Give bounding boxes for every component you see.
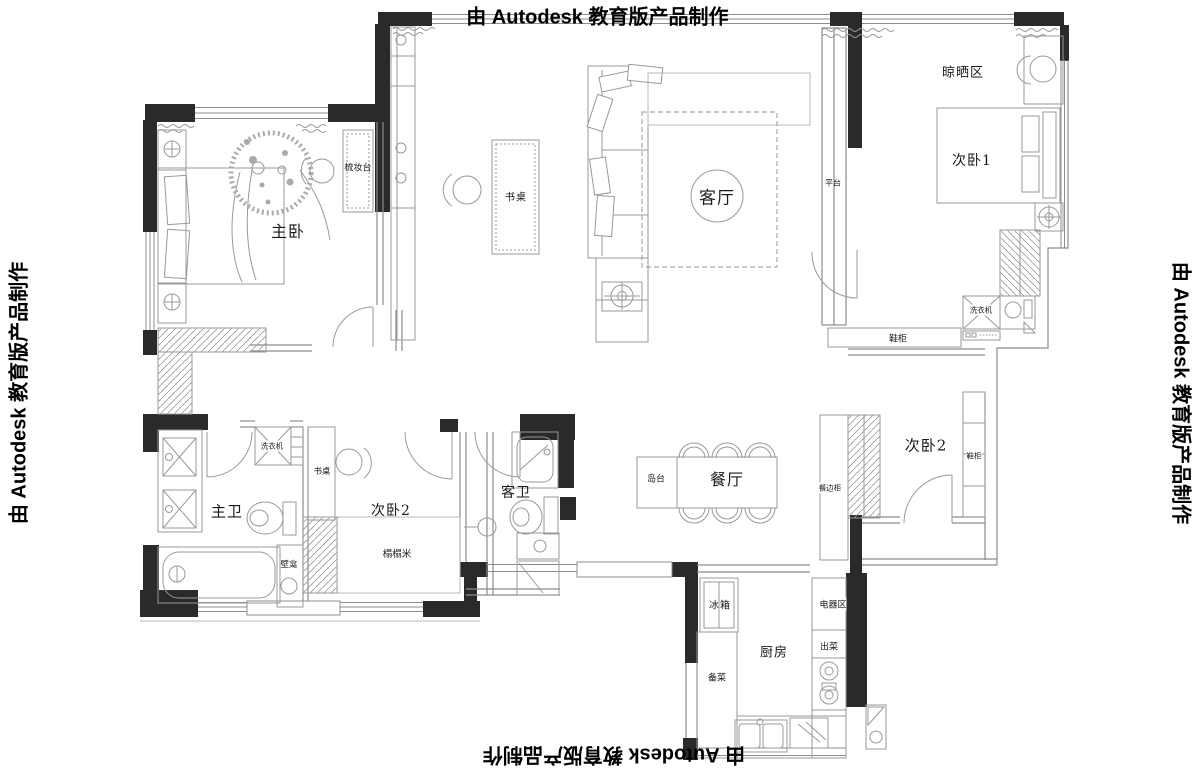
label-bedroom2-left: 次卧2: [371, 500, 411, 520]
floorplan-canvas: 主卧 梳妆台 书桌 客厅 平台 晾晒区 次卧1 洗衣机 鞋柜 次卧2 鞋柜 餐边…: [0, 0, 1200, 776]
label-shoe-cabinet-top: 鞋柜: [889, 332, 907, 345]
label-master-bath: 主卫: [211, 501, 243, 522]
autodesk-banner-right: 由 Autodesk 教育版产品制作: [1169, 262, 1198, 524]
label-platform: 平台: [825, 178, 841, 189]
label-prep: 备菜: [708, 671, 726, 684]
label-shoe-cabinet-right: 鞋柜: [967, 451, 982, 462]
autodesk-banner-left: 由 Autodesk 教育版产品制作: [3, 262, 32, 524]
autodesk-banner-bottom: 由 Autodesk 教育版产品制作: [483, 743, 745, 772]
living-room-furniture: [391, 27, 810, 342]
label-washer-left: 洗衣机: [261, 441, 284, 452]
label-bedroom1: 次卧1: [952, 150, 992, 170]
label-master-bedroom: 主卧: [271, 218, 305, 242]
label-dining-room: 餐厅: [710, 466, 744, 490]
label-niche: 壁龛: [280, 558, 297, 570]
label-drying-area: 晾晒区: [942, 62, 984, 81]
label-living-room: 客厅: [699, 184, 735, 209]
label-guest-bath: 客卫: [501, 482, 531, 502]
label-dressing-table: 梳妆台: [344, 161, 371, 174]
bedroom2-right-furniture: [820, 392, 985, 560]
autodesk-banner-top: 由 Autodesk 教育版产品制作: [466, 1, 728, 30]
label-appliance-area: 电器区: [819, 598, 846, 611]
label-desk-bedroom: 书桌: [313, 465, 330, 477]
label-tatami: 榻榻米: [383, 546, 412, 560]
label-washer-right: 洗衣机: [970, 305, 993, 316]
label-serving: 出菜: [820, 640, 838, 653]
floorplan-drawing: [0, 0, 1200, 776]
label-kitchen: 厨房: [760, 642, 788, 661]
label-fridge: 冰箱: [709, 597, 731, 612]
label-sideboard: 餐边柜: [819, 483, 842, 494]
label-desk-living: 书桌: [505, 189, 527, 204]
label-bedroom2-right: 次卧2: [905, 435, 948, 456]
label-island: 岛台: [647, 472, 665, 485]
